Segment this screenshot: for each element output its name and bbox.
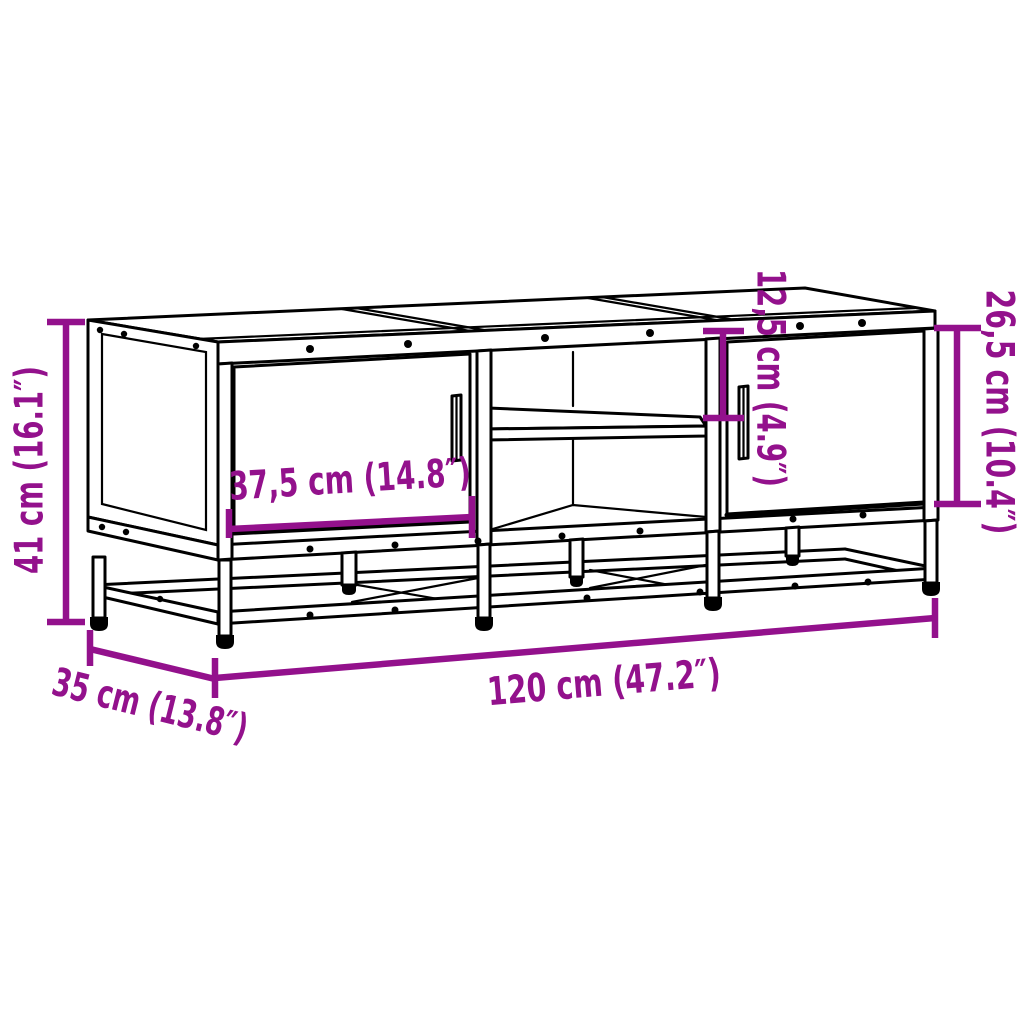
middle-compartment: [486, 341, 706, 531]
dimension-label-upper-compartment-height: 12,5 cm (4.9″): [748, 269, 793, 487]
dimension-diagram: 41 cm (16.1″) 37,5 cm (14.8″) 12,5 cm (4…: [0, 0, 1024, 1024]
dimension-label-door-height: 26,5 cm (10.4″): [977, 290, 1022, 535]
dimension-overall-height: 41 cm (16.1″): [8, 322, 86, 622]
left-side-panel: [88, 320, 218, 560]
right-door-handle: [739, 386, 748, 459]
furniture-outline: [88, 288, 940, 649]
dimension-label-overall-width: 120 cm (47.2″): [486, 651, 723, 715]
middle-shelf: [486, 408, 706, 440]
dimension-label-overall-depth: 35 cm (13.8″): [48, 660, 253, 752]
dimension-door-height: 26,5 cm (10.4″): [934, 290, 1022, 535]
tv-stand-line-drawing: 41 cm (16.1″) 37,5 cm (14.8″) 12,5 cm (4…: [0, 0, 1024, 1024]
dimension-label-overall-height: 41 cm (16.1″): [8, 366, 53, 574]
